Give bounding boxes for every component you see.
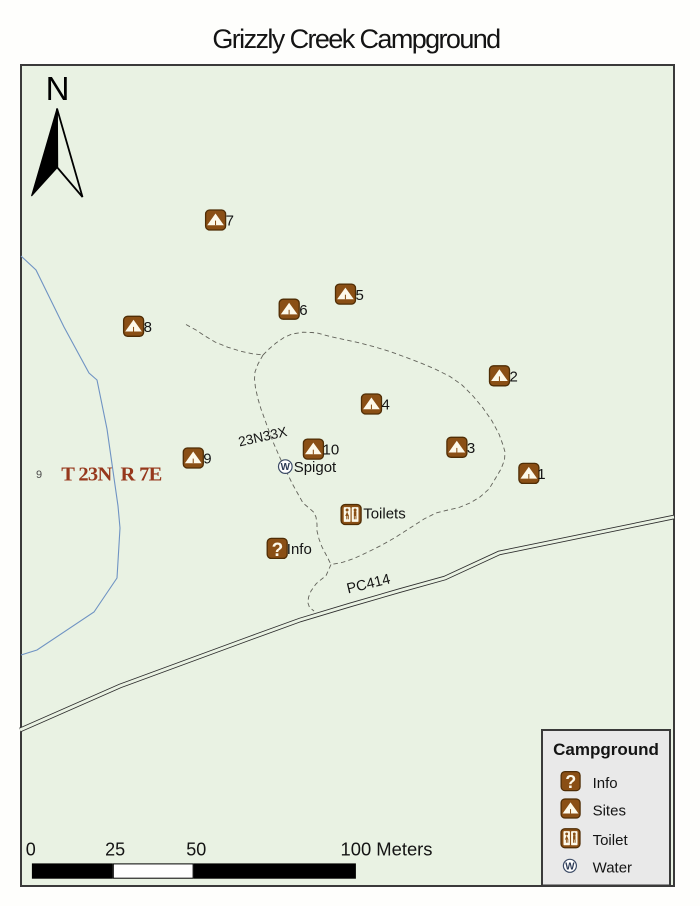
svg-text:Toilet: Toilet [593, 832, 629, 849]
svg-text:Water: Water [593, 860, 632, 877]
svg-text:9: 9 [36, 469, 42, 481]
svg-text:W: W [565, 861, 575, 872]
svg-text:8: 8 [144, 319, 152, 336]
svg-text:?: ? [565, 772, 576, 792]
svg-text:Info: Info [287, 541, 312, 558]
svg-text:6: 6 [299, 302, 307, 319]
svg-text:T 23N R 7E: T 23N R 7E [61, 464, 161, 486]
svg-text:7: 7 [226, 213, 234, 230]
svg-text:?: ? [272, 540, 284, 561]
svg-text:25: 25 [105, 840, 125, 860]
svg-text:5: 5 [356, 287, 364, 304]
svg-text:Toilets: Toilets [363, 506, 406, 523]
svg-text:4: 4 [382, 397, 390, 414]
svg-text:10: 10 [323, 442, 340, 459]
svg-text:9: 9 [203, 451, 211, 468]
svg-text:100 Meters: 100 Meters [341, 839, 433, 860]
svg-text:Grizzly Creek Campground: Grizzly Creek Campground [212, 24, 500, 54]
svg-text:Campground: Campground [553, 740, 659, 759]
svg-text:0: 0 [26, 840, 36, 860]
svg-text:N: N [46, 70, 70, 107]
svg-text:50: 50 [186, 840, 206, 860]
svg-text:Sites: Sites [593, 802, 626, 819]
svg-text:Spigot: Spigot [294, 459, 337, 476]
svg-text:1: 1 [537, 466, 545, 483]
svg-text:Info: Info [593, 775, 618, 792]
svg-text:3: 3 [467, 440, 475, 457]
svg-text:2: 2 [510, 369, 518, 386]
svg-text:W: W [281, 462, 291, 473]
